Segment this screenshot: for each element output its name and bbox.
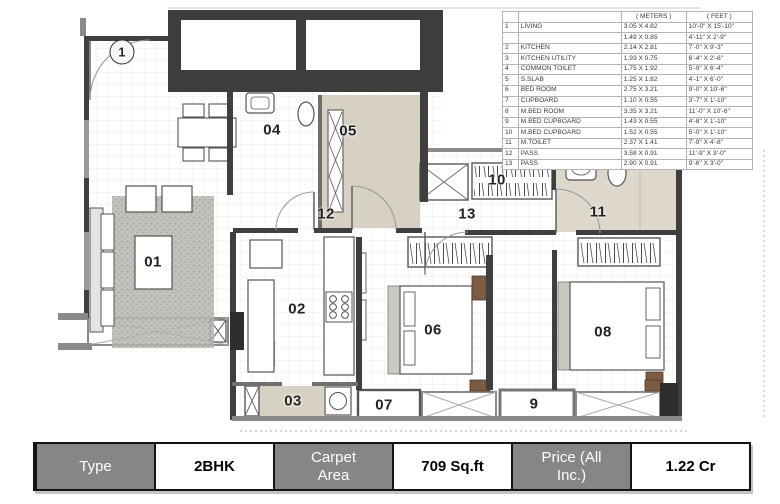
legend-table: ( METERS ) ( FEET ) 1 LIVING 3.05 X 4.82… [502,11,753,170]
legend-cell-name: M.BED CUPBOARD [518,117,621,128]
legend-cell-num: 2 [503,43,519,54]
legend-cell-name: COMMON TOILET [518,64,621,75]
legend-row: 11 M.TOILET 2.37 X 1.41 7'-9" X 4'-8" [503,138,753,149]
legend-row: 8 M.BED ROOM 3.35 X 3.21 11'-0" X 10'-6" [503,107,753,118]
legend-cell-num: 9 [503,117,519,128]
legend-cell-meters: 1.93 X 0.75 [621,54,686,65]
room-label: 06 [424,322,442,339]
room-label: 02 [288,301,306,318]
legend-row: 1 LIVING 3.05 X 4.82 10'-0" X 15'-10" [503,22,753,33]
legend-cell-num: 4 [503,64,519,75]
legend-row: 4 COMMON TOILET 1.75 X 1.92 5'-9" X 6'-4… [503,64,753,75]
legend-cell-feet: 5'-9" X 6'-4" [686,64,752,75]
legend-cell-feet: 9'-0" X 10'-6" [686,85,752,96]
legend-header-meters: ( METERS ) [621,12,686,23]
legend-cell-num: 7 [503,96,519,107]
legend-header-row: ( METERS ) ( FEET ) [503,12,753,23]
legend-cell-feet: 11'-9" X 3'-0" [686,149,752,160]
legend-cell-feet: 11'-0" X 10'-6" [686,107,752,118]
legend-cell-name: PASS [518,149,621,160]
legend-cell-num: 11 [503,138,519,149]
legend-row: 9 M.BED CUPBOARD 1.43 X 0.55 4'-8" X 1'-… [503,117,753,128]
legend-cell-num: 13 [503,159,519,170]
legend-cell-meters: 1.75 X 1.92 [621,64,686,75]
legend-cell-meters: 1.25 X 1.82 [621,75,686,86]
legend-header-name [518,12,621,23]
unit-info-bar: Type 2BHK Carpet Area 709 Sq.ft Price (A… [33,442,751,491]
shaft-block [168,10,443,92]
room-label: 01 [144,254,162,271]
legend-cell-meters: 2.75 X 3.21 [621,85,686,96]
legend-cell-name: S.SLAB [518,75,621,86]
legend-row: 5 S.SLAB 1.25 X 1.82 4'-1" X 6'-0" [503,75,753,86]
legend-cell-feet: 5'-0" X 1'-10" [686,128,752,139]
legend-cell-name: CUPBOARD [518,96,621,107]
legend-cell-num: 12 [503,149,519,160]
room-label: 04 [263,122,281,139]
legend-cell-name: PASS [518,159,621,170]
legend-cell-meters: 2.90 X 0.91 [621,159,686,170]
legend-cell-name: M.BED CUPBOARD [518,128,621,139]
legend-cell-meters: 1.43 X 0.55 [621,117,686,128]
legend-row: 6 BED ROOM 2.75 X 3.21 9'-0" X 10'-6" [503,85,753,96]
legend-row: 7 CUPBOARD 1.10 X 0.55 3'-7" X 1'-10" [503,96,753,107]
legend-cell-feet: 6'-4" X 2'-6" [686,54,752,65]
room-label: 10 [488,172,506,189]
floor-plan-page: 1 04 05 12 13 10 11 01 02 06 08 03 07 9 [0,0,780,504]
legend-cell-name: M.TOILET [518,138,621,149]
legend-cell-feet: 7'-0" X 9'-3" [686,43,752,54]
legend-cell-name: KITCHEN [518,43,621,54]
legend-cell-feet: 3'-7" X 1'-10" [686,96,752,107]
info-bar-cell: Type [35,444,154,489]
info-bar-cell: 1.22 Cr [630,444,749,489]
legend-cell-num: 1 [503,22,519,33]
legend-cell-feet: 9'-6" X 3'-0" [686,159,752,170]
legend-cell-meters: 1.10 X 0.55 [621,96,686,107]
legend-cell-num: 3 [503,54,519,65]
legend-cell-num: 8 [503,107,519,118]
legend-cell-num: 10 [503,128,519,139]
legend-header-feet: ( FEET ) [686,12,752,23]
legend-row: 10 M.BED CUPBOARD 1.52 X 0.55 5'-0" X 1'… [503,128,753,139]
legend-cell-meters: 3.35 X 3.21 [621,107,686,118]
legend-cell-meters: 1.52 X 0.55 [621,128,686,139]
legend-row: 3 KITCHEN UTILITY 1.93 X 0.75 6'-4" X 2'… [503,54,753,65]
legend-row: 1.49 X 0.85 4'-11" X 2'-9" [503,33,753,44]
legend-cell-meters: 1.49 X 0.85 [621,33,686,44]
legend-cell-num [503,33,519,44]
info-bar-cell: 709 Sq.ft [392,444,511,489]
legend-cell-name: BED ROOM [518,85,621,96]
info-bar-cell: 2BHK [154,444,273,489]
room-label: 9 [530,396,539,413]
room-label: 1 [110,40,135,65]
legend-cell-name: M.BED ROOM [518,107,621,118]
room-label: 13 [458,206,476,223]
legend-cell-name: KITCHEN UTILITY [518,54,621,65]
legend-cell-feet: 4'-1" X 6'-0" [686,75,752,86]
room-label: 07 [375,397,393,414]
legend-cell-meters: 3.58 X 0.91 [621,149,686,160]
legend-cell-num: 6 [503,85,519,96]
legend-cell-num: 5 [503,75,519,86]
room-label: 08 [594,324,612,341]
room-label: 05 [339,123,357,140]
legend-cell-feet: 4'-8" X 1'-10" [686,117,752,128]
info-bar-cell: Carpet Area [273,444,392,489]
legend-cell-meters: 2.14 X 2.81 [621,43,686,54]
legend-cell-meters: 2.37 X 1.41 [621,138,686,149]
legend-cell-feet: 4'-11" X 2'-9" [686,33,752,44]
room-label: 03 [284,393,302,410]
legend-header-num [503,12,519,23]
legend-cell-name [518,33,621,44]
legend-cell-name: LIVING [518,22,621,33]
info-bar-cell: Price (All Inc.) [511,444,630,489]
legend-cell-meters: 3.05 X 4.82 [621,22,686,33]
legend-row: 2 KITCHEN 2.14 X 2.81 7'-0" X 9'-3" [503,43,753,54]
legend-cell-feet: 10'-0" X 15'-10" [686,22,752,33]
legend-row: 13 PASS 2.90 X 0.91 9'-6" X 3'-0" [503,159,753,170]
room-label: 12 [317,206,335,223]
legend-row: 12 PASS 3.58 X 0.91 11'-9" X 3'-0" [503,149,753,160]
legend-cell-feet: 7'-9" X 4'-8" [686,138,752,149]
room-label: 11 [590,204,607,221]
